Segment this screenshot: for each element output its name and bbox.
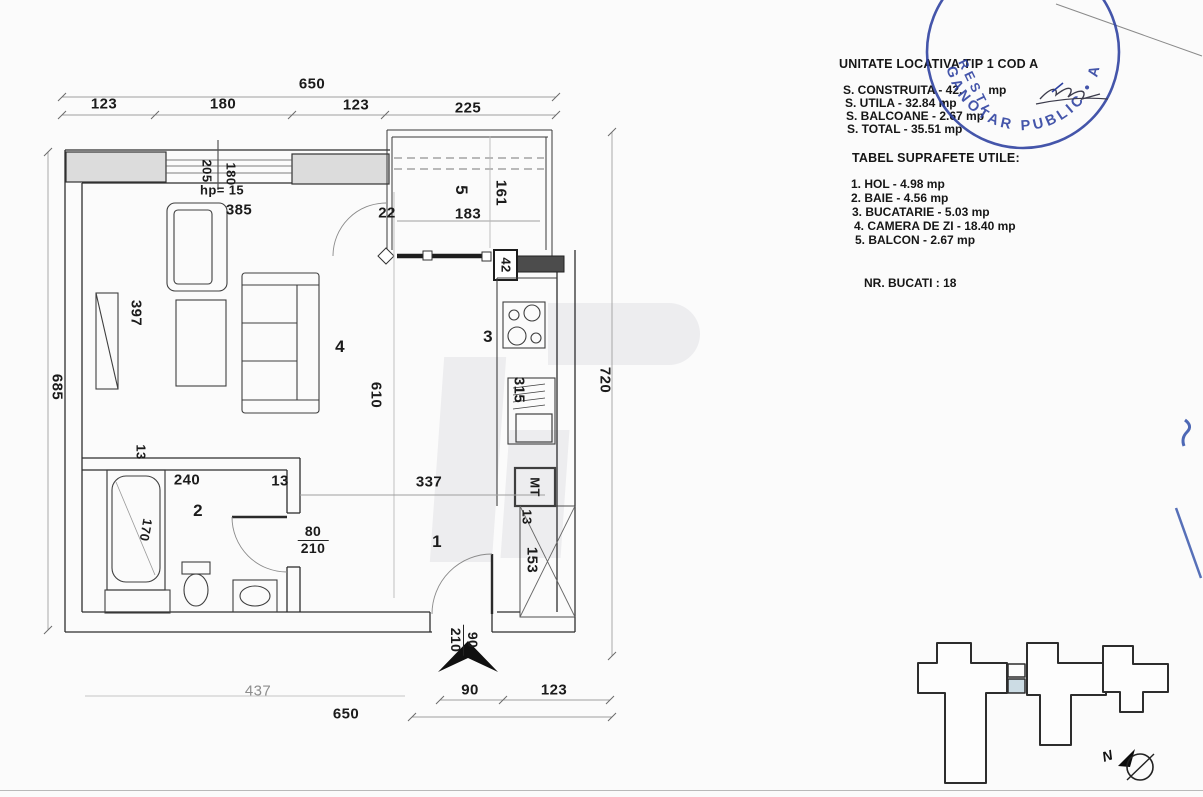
room-entry-hol: 1. HOL - 4.98 mp [851,177,945,191]
dim-overall-bottom: 650 [333,706,359,723]
area-balcoane: S. BALCOANE - 2.67 mp [846,109,984,123]
page-border-line [0,790,1203,791]
dim-bath-width: 240 [174,472,200,489]
room-entry-camera: 4. CAMERA DE ZI - 18.40 mp [854,219,1016,233]
dim-bath-wall-a: 13 [134,444,149,459]
room-label-living: 4 [335,337,345,357]
dim-balcony-wall: 42 [499,257,514,272]
dim-window-a: 205 [200,160,215,183]
balcony-sliding-door [333,203,564,280]
dim-shaft-a: 13 [520,509,535,524]
dim-top-3: 123 [343,97,369,114]
toilet-icon [182,562,210,574]
area-construita: S. CONSTRUITA - 42.mp [843,83,1006,97]
coffee-table-icon [176,300,226,386]
bathroom-door [232,517,287,572]
room-label-balcony: 5 [451,185,471,195]
floor-plan-drawing: N [0,0,1203,797]
room-entry-balcon: 5. BALCON - 2.67 mp [855,233,975,247]
units-count: NR. BUCATI : 18 [864,276,956,290]
compass-icon: N [1100,746,1154,780]
area-utila: S. UTILA - 32.84 mp [845,96,957,110]
dim-balcony-width: 183 [455,206,481,223]
bathroom-fixtures [105,470,277,613]
dim-balcony-gap: 22 [378,205,396,222]
armchair-icon [167,203,227,291]
dim-bath-wall-b: 13 [271,473,289,490]
dim-bottom-b: 90 [461,682,479,699]
dim-overall-top: 650 [299,76,325,93]
dim-bath-door: 80 210 [298,524,329,556]
dim-living-width: 385 [226,202,252,219]
dim-hall-width: 337 [416,474,442,491]
parapet-height-label: hp= 15 [200,183,244,198]
area-total: S. TOTAL - 35.51 mp [847,122,962,136]
room-entry-bucatarie: 3. BUCATARIE - 5.03 mp [852,205,990,219]
scanned-floor-plan-page: N 650 123 180 123 225 205 180 hp= 15 385… [0,0,1203,797]
entry-door-height: 210 [448,625,464,656]
exterior-walls [65,150,575,632]
meter-label: MT [528,477,543,497]
room-entry-baie: 2. BAIE - 4.56 mp [851,191,948,205]
room-label-bathroom: 2 [193,501,203,521]
dim-shaft-b: 153 [524,547,541,573]
area-construita-text: S. CONSTRUITA - 42. [843,83,962,97]
room-label-kitchen: 3 [483,327,493,347]
dim-kitchen-counter: 315 [511,377,528,403]
bath-cabinet-icon [105,590,170,613]
dim-radiator: 397 [128,300,145,326]
sofa-icon [242,273,319,413]
dim-top-1: 123 [91,96,117,113]
dim-bottom-a: 437 [245,683,271,700]
door-hinge-icon [378,248,394,264]
unit-highlight [1008,679,1025,693]
area-construita-unit: mp [988,83,1006,97]
dim-overall-left: 685 [49,374,66,400]
scan-marks [1056,4,1202,578]
bath-door-width: 80 [305,524,321,539]
entry-door-width: 90 [465,632,480,648]
dim-entry-door: 90 210 [448,625,480,656]
north-label: N [1100,746,1115,765]
dim-bottom-c: 123 [541,682,567,699]
dim-balcony-depth: 161 [493,180,510,206]
dim-top-4: 225 [455,100,481,117]
room-label-hall: 1 [432,532,442,552]
dim-overall-right: 720 [597,367,614,393]
table-title: TABEL SUPRAFETE UTILE: [852,151,1020,165]
dim-interior-height: 610 [368,382,385,408]
unit-title: UNITATE LOCATIVA TIP 1 COD A [839,57,1038,71]
bath-door-height: 210 [298,540,329,556]
dim-top-2: 180 [210,96,236,113]
